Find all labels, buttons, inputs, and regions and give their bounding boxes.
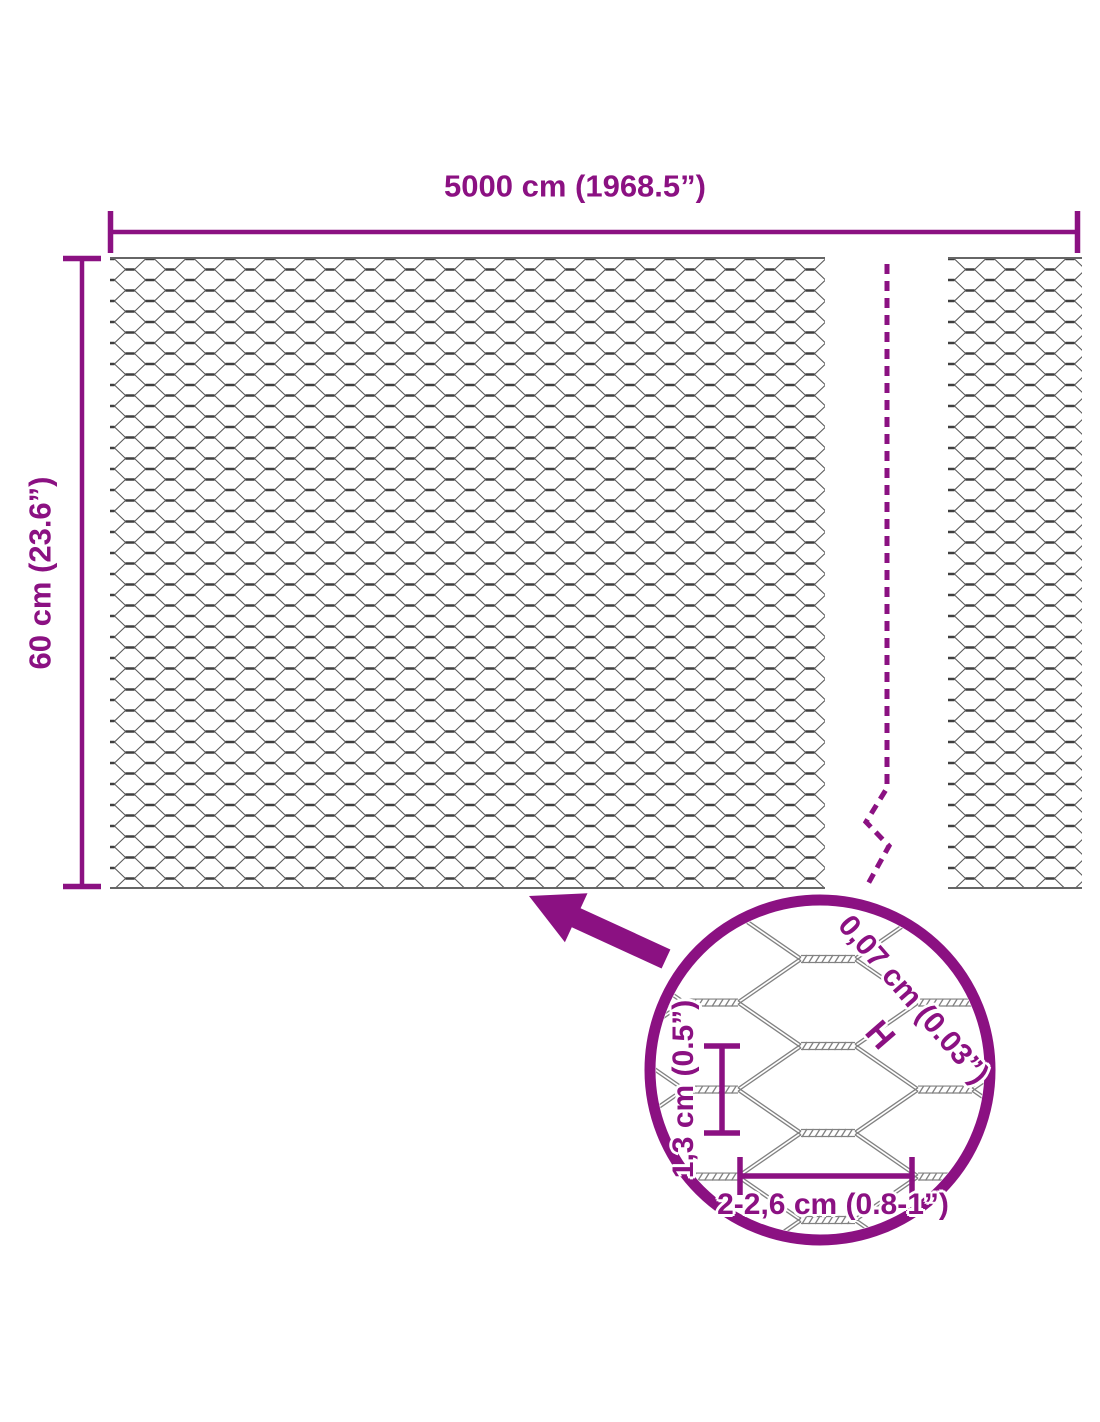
total-width-label: 5000 cm (1968.5”) [444,171,706,202]
product-dimension-diagram: 5000 cm (1968.5”) 60 cm (23.6”) 0,07 cm … [0,0,1100,1422]
detail-arrow-icon [529,893,670,968]
mesh-panel-right-fill [948,257,1082,889]
mesh-width-label: 2-2,6 cm (0.8-1”) [717,1190,949,1220]
mesh-panel-left [110,257,825,889]
total-height-label: 60 cm (23.6”) [25,477,56,670]
mesh-height-label: 1,3 cm (0.5”) [669,1000,699,1178]
mesh-panel-right [948,257,1082,889]
height-dimension [63,258,101,887]
length-break-line [866,264,889,884]
mesh-panel-left-fill [110,257,825,889]
width-dimension [110,211,1078,253]
